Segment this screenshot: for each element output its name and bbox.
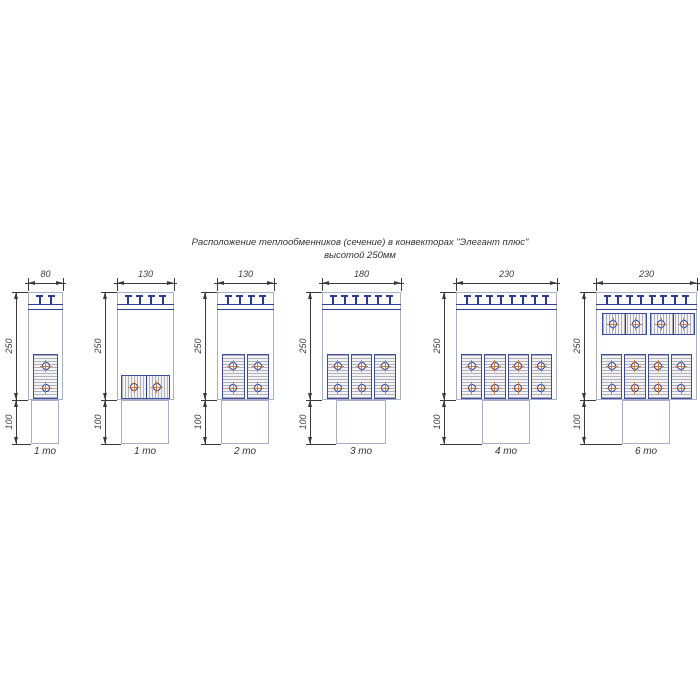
- grille-line: [322, 309, 401, 310]
- duct-dimension-label: 100: [93, 407, 103, 437]
- width-dimension-label: 180: [302, 269, 421, 279]
- dimension-arrow-icon: [14, 393, 18, 400]
- tube-marker: [332, 382, 344, 394]
- tube-marker: [227, 360, 239, 372]
- tube-marker: [356, 382, 368, 394]
- type-label: 3 то: [336, 446, 386, 458]
- grille-slat: [364, 295, 371, 304]
- dimension-arrow-icon: [456, 281, 463, 285]
- tube-center-mark: [683, 318, 684, 330]
- dimension-arrow-icon: [14, 400, 18, 407]
- dimension-line: [593, 283, 700, 284]
- dimension-arrow-icon: [203, 437, 207, 444]
- tube-marker: [512, 360, 524, 372]
- duct-dimension-label: 100: [298, 407, 308, 437]
- dimension-arrow-icon: [442, 292, 446, 299]
- tube-marker: [652, 360, 664, 372]
- height-dimension-label: 250: [4, 331, 14, 361]
- type-label: 2 то: [220, 446, 270, 458]
- grille-slat: [475, 295, 482, 304]
- grille-slat: [615, 295, 622, 304]
- dimension-line: [319, 283, 404, 284]
- grille-slat: [637, 295, 644, 304]
- grille-slat: [136, 295, 143, 304]
- type-label: 1 то: [120, 446, 170, 458]
- grille-slat: [48, 295, 55, 304]
- tube-center-mark: [337, 382, 338, 394]
- height-dimension-label: 250: [572, 331, 582, 361]
- tube-marker: [629, 360, 641, 372]
- air-duct: [336, 400, 386, 444]
- grille-slat: [225, 295, 232, 304]
- tube-center-mark: [541, 382, 542, 394]
- dimension-arrow-icon: [56, 281, 63, 285]
- dimension-arrow-icon: [117, 281, 124, 285]
- block-divider: [146, 375, 147, 399]
- extension-line: [306, 444, 336, 445]
- grille-line: [322, 304, 401, 305]
- tube-center-mark: [361, 382, 362, 394]
- grille-line: [28, 304, 63, 305]
- dimension-arrow-icon: [308, 400, 312, 407]
- dimension-arrow-icon: [203, 393, 207, 400]
- dimension-arrow-icon: [167, 281, 174, 285]
- tube-center-mark: [257, 382, 258, 394]
- tube-marker: [675, 382, 687, 394]
- tube-center-mark: [611, 382, 612, 394]
- dimension-arrow-icon: [203, 292, 207, 299]
- grille-slat: [330, 295, 337, 304]
- tube-marker: [678, 318, 690, 330]
- drawing-title-line1: Расположение теплообменников (сечение) в…: [40, 236, 680, 249]
- grille-slat: [125, 295, 132, 304]
- grille-slat: [259, 295, 266, 304]
- dimension-arrow-icon: [582, 292, 586, 299]
- tube-center-mark: [385, 382, 386, 394]
- tube-center-mark: [361, 360, 362, 372]
- air-duct: [31, 400, 59, 444]
- height-dimension-label: 250: [93, 331, 103, 361]
- tube-center-mark: [45, 382, 46, 394]
- grille-slat: [671, 295, 678, 304]
- extension-line: [174, 278, 175, 291]
- dimension-arrow-icon: [103, 292, 107, 299]
- tube-center-mark: [613, 318, 614, 330]
- dimension-arrow-icon: [442, 400, 446, 407]
- extension-line: [12, 444, 31, 445]
- duct-dimension-label: 100: [572, 407, 582, 437]
- air-duct: [622, 400, 670, 444]
- tube-center-mark: [233, 382, 234, 394]
- dimension-arrow-icon: [582, 437, 586, 444]
- grille-slat: [604, 295, 611, 304]
- drawing-title: Расположение теплообменников (сечение) в…: [40, 236, 680, 262]
- tube-marker: [606, 382, 618, 394]
- grille-line: [28, 309, 63, 310]
- block-divider: [625, 313, 626, 335]
- tube-marker: [379, 360, 391, 372]
- air-duct: [482, 400, 530, 444]
- tube-marker: [606, 360, 618, 372]
- tube-center-mark: [156, 381, 157, 393]
- type-label: 4 то: [481, 446, 531, 458]
- extension-line: [101, 444, 121, 445]
- tube-marker: [466, 382, 478, 394]
- tube-center-mark: [611, 360, 612, 372]
- grille-slat: [341, 295, 348, 304]
- duct-dimension-label: 100: [4, 407, 14, 437]
- duct-dimension-label: 100: [193, 407, 203, 437]
- grille-line: [217, 309, 274, 310]
- dimension-arrow-icon: [217, 281, 224, 285]
- grille-slat: [497, 295, 504, 304]
- grille-slat: [509, 295, 516, 304]
- grille-slat: [542, 295, 549, 304]
- tube-marker: [652, 382, 664, 394]
- dimension-arrow-icon: [103, 400, 107, 407]
- tube-marker: [535, 360, 547, 372]
- grille-slat: [375, 295, 382, 304]
- grille-line: [217, 304, 274, 305]
- tube-center-mark: [518, 360, 519, 372]
- dimension-line: [584, 292, 585, 400]
- tube-marker: [629, 382, 641, 394]
- extension-line: [580, 444, 622, 445]
- tube-marker: [227, 382, 239, 394]
- dimension-arrow-icon: [582, 400, 586, 407]
- extension-line: [274, 278, 275, 291]
- grille-slat: [36, 295, 43, 304]
- width-dimension-label: 230: [436, 269, 577, 279]
- grille-line: [456, 304, 557, 305]
- tube-marker: [655, 318, 667, 330]
- dimension-line: [205, 292, 206, 400]
- drawing-title-line2: высотой 250мм: [40, 249, 680, 262]
- grille-slat: [486, 295, 493, 304]
- dimension-arrow-icon: [14, 437, 18, 444]
- tube-center-mark: [385, 360, 386, 372]
- duct-dimension-label: 100: [432, 407, 442, 437]
- dimension-arrow-icon: [394, 281, 401, 285]
- grille-line: [596, 304, 697, 305]
- extension-line: [63, 278, 64, 291]
- tube-marker: [466, 360, 478, 372]
- dimension-arrow-icon: [14, 292, 18, 299]
- dimension-arrow-icon: [103, 437, 107, 444]
- extension-line: [401, 278, 402, 291]
- tube-center-mark: [635, 318, 636, 330]
- extension-line: [201, 444, 221, 445]
- tube-center-mark: [661, 318, 662, 330]
- tube-marker: [489, 360, 501, 372]
- grille-slat: [626, 295, 633, 304]
- dimension-line: [453, 283, 560, 284]
- grille-slat: [649, 295, 656, 304]
- tube-center-mark: [45, 360, 46, 372]
- tube-center-mark: [257, 360, 258, 372]
- grille-line: [117, 304, 174, 305]
- height-dimension-label: 250: [432, 331, 442, 361]
- dimension-arrow-icon: [690, 281, 697, 285]
- grille-slat: [159, 295, 166, 304]
- tube-center-mark: [634, 360, 635, 372]
- dimension-arrow-icon: [28, 281, 35, 285]
- tube-marker: [332, 360, 344, 372]
- grille-slat: [248, 295, 255, 304]
- tube-center-mark: [134, 381, 135, 393]
- dimension-arrow-icon: [308, 292, 312, 299]
- tube-marker: [356, 360, 368, 372]
- width-dimension-label: 130: [197, 269, 294, 279]
- type-label: 6 то: [621, 446, 671, 458]
- grille-slat: [148, 295, 155, 304]
- tube-center-mark: [337, 360, 338, 372]
- extension-line: [440, 444, 482, 445]
- tube-center-mark: [494, 382, 495, 394]
- width-dimension-label: 80: [8, 269, 83, 279]
- extension-line: [697, 278, 698, 291]
- dimension-line: [444, 292, 445, 400]
- drawing-canvas: Расположение теплообменников (сечение) в…: [0, 0, 700, 700]
- block-divider: [673, 313, 674, 335]
- dimension-arrow-icon: [442, 437, 446, 444]
- tube-marker: [630, 318, 642, 330]
- tube-marker: [512, 382, 524, 394]
- grille-line: [117, 309, 174, 310]
- dimension-arrow-icon: [442, 393, 446, 400]
- dimension-arrow-icon: [322, 281, 329, 285]
- height-dimension-label: 250: [298, 331, 308, 361]
- tube-marker: [607, 318, 619, 330]
- dimension-line: [310, 292, 311, 400]
- tube-center-mark: [681, 382, 682, 394]
- dimension-arrow-icon: [103, 393, 107, 400]
- tube-marker: [535, 382, 547, 394]
- grille-slat: [386, 295, 393, 304]
- grille-line: [596, 309, 697, 310]
- dimension-line: [105, 292, 106, 400]
- tube-marker: [128, 381, 140, 393]
- dimension-line: [16, 292, 17, 400]
- type-label: 1 то: [20, 446, 70, 458]
- tube-center-mark: [634, 382, 635, 394]
- tube-center-mark: [681, 360, 682, 372]
- dimension-arrow-icon: [308, 393, 312, 400]
- extension-line: [557, 278, 558, 291]
- tube-marker: [379, 382, 391, 394]
- grille-slat: [352, 295, 359, 304]
- tube-center-mark: [233, 360, 234, 372]
- width-dimension-label: 230: [576, 269, 700, 279]
- grille-slat: [236, 295, 243, 304]
- tube-center-mark: [494, 360, 495, 372]
- tube-center-mark: [541, 360, 542, 372]
- tube-center-mark: [658, 382, 659, 394]
- grille-slat: [660, 295, 667, 304]
- tube-marker: [489, 382, 501, 394]
- height-dimension-label: 250: [193, 331, 203, 361]
- tube-marker: [252, 360, 264, 372]
- dimension-arrow-icon: [203, 400, 207, 407]
- dimension-arrow-icon: [308, 437, 312, 444]
- tube-center-mark: [471, 382, 472, 394]
- air-duct: [121, 400, 169, 444]
- grille-slat: [464, 295, 471, 304]
- tube-center-mark: [658, 360, 659, 372]
- tube-marker: [675, 360, 687, 372]
- tube-center-mark: [518, 382, 519, 394]
- width-dimension-label: 130: [97, 269, 194, 279]
- dimension-arrow-icon: [267, 281, 274, 285]
- grille-slat: [520, 295, 527, 304]
- dimension-arrow-icon: [582, 393, 586, 400]
- grille-line: [456, 309, 557, 310]
- tube-center-mark: [471, 360, 472, 372]
- tube-marker: [252, 382, 264, 394]
- grille-slat: [531, 295, 538, 304]
- dimension-arrow-icon: [550, 281, 557, 285]
- dimension-arrow-icon: [596, 281, 603, 285]
- tube-marker: [40, 382, 52, 394]
- grille-slat: [682, 295, 689, 304]
- tube-marker: [151, 381, 163, 393]
- tube-marker: [40, 360, 52, 372]
- air-duct: [221, 400, 269, 444]
